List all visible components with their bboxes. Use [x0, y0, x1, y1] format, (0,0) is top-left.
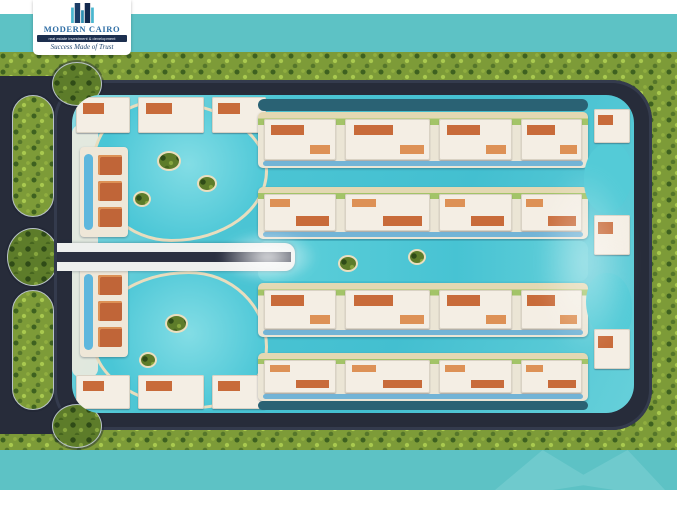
brand-name: MODERN CAIRO — [44, 24, 120, 34]
logo-mark-icon — [68, 3, 96, 23]
island — [133, 191, 151, 207]
building-block — [439, 290, 511, 329]
entrance-roundabout — [7, 228, 59, 286]
building-block — [76, 97, 130, 133]
villa-row-south — [76, 375, 266, 409]
water-channel-south — [258, 401, 588, 410]
island — [338, 255, 358, 272]
building-strip-4 — [258, 353, 588, 401]
building-block — [345, 194, 430, 231]
building-block — [594, 109, 630, 143]
building-strip-1 — [258, 112, 588, 168]
brand-slogan: Success Made of Trust — [51, 43, 114, 51]
building-block — [439, 119, 511, 160]
building-block — [345, 360, 430, 393]
render-haze — [538, 167, 633, 357]
building-block — [264, 290, 336, 329]
terracotta-roof — [98, 207, 122, 227]
terracotta-roof — [98, 301, 122, 321]
building-block — [264, 194, 336, 231]
terracotta-roof — [98, 155, 122, 175]
island — [408, 249, 426, 265]
island — [197, 175, 217, 192]
villa-row-north — [76, 97, 266, 133]
median-island-south — [12, 290, 54, 410]
brand-logo: MODERN CAIRO real estate investment & de… — [33, 0, 131, 55]
building-block — [76, 375, 130, 409]
linear-pool — [84, 154, 93, 230]
median-island-north — [12, 95, 54, 217]
island — [165, 314, 188, 333]
masterplan-render — [0, 52, 677, 450]
building-block — [345, 119, 430, 160]
building-block — [264, 119, 336, 160]
terracotta-cluster-north — [80, 147, 128, 237]
masterplan-screenshot: MODERN CAIRO real estate investment & de… — [0, 0, 677, 508]
building-block — [345, 290, 430, 329]
terracotta-cluster-south — [80, 267, 128, 357]
watermark-shape — [495, 450, 665, 490]
fountain-mist — [218, 230, 318, 284]
building-block — [439, 360, 511, 393]
building-block — [138, 375, 203, 409]
building-block — [521, 360, 582, 393]
building-block — [264, 360, 336, 393]
building-block — [439, 194, 511, 231]
brand-subtitle-bar: real estate investment & development — [37, 35, 127, 42]
terracotta-roof — [98, 275, 122, 295]
island — [157, 151, 181, 171]
building-block — [138, 97, 203, 133]
teal-band-bottom — [0, 450, 677, 490]
island — [139, 352, 157, 368]
water-channel-north — [258, 99, 588, 111]
linear-pool — [84, 274, 93, 350]
terracotta-roof — [98, 181, 122, 201]
terracotta-roof — [98, 327, 122, 347]
building-block — [521, 119, 582, 160]
